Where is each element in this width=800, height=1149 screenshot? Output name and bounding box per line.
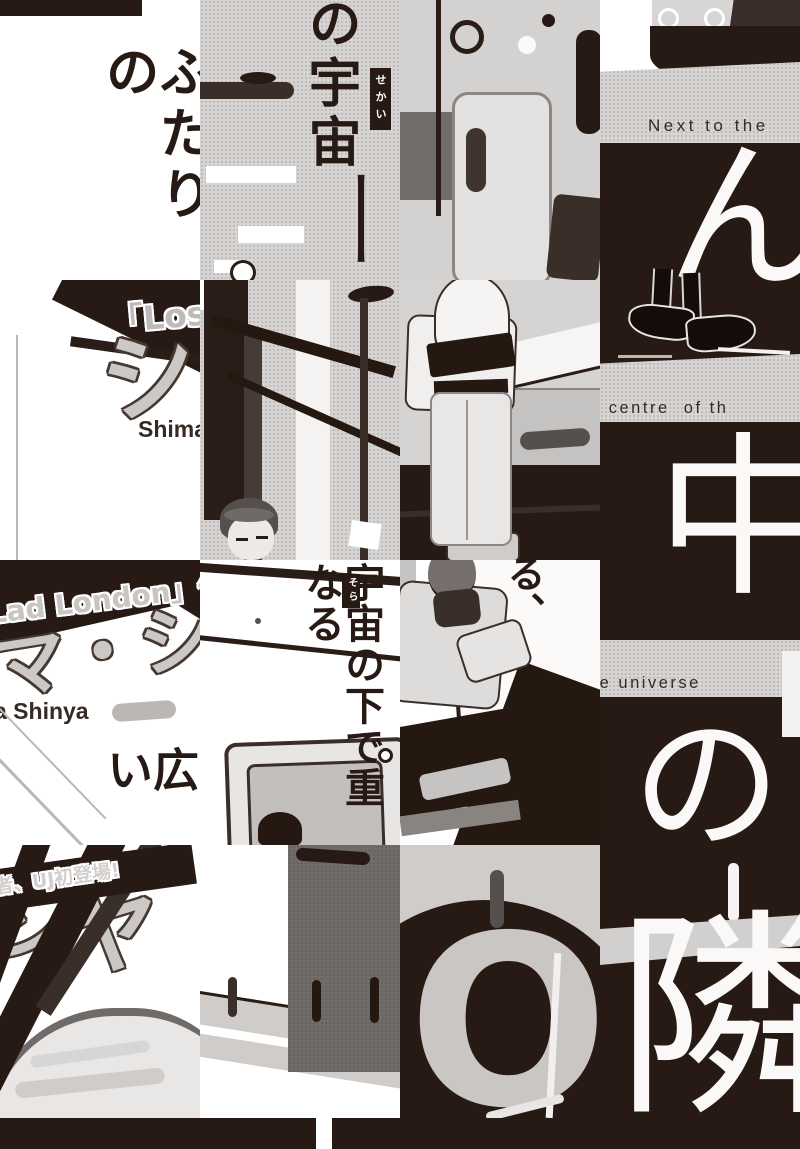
tile-machinery <box>400 0 600 280</box>
antenna-line <box>436 0 441 216</box>
ring-detail <box>450 20 484 54</box>
right-black-column: ん e centre of th 中 he universe の 隣 <box>600 143 800 1149</box>
tile-copy-center: 宇宙の下で重なる そら <box>200 560 400 845</box>
thin-pole-line <box>16 335 18 560</box>
tile-truck <box>200 845 400 1149</box>
curb-line <box>0 733 87 845</box>
vertical-copy-hiroi: 広い <box>104 746 196 845</box>
dark-dot <box>542 14 555 27</box>
vertical-copy-sora: 宇宙の下で重なる <box>301 562 381 845</box>
character-fringe <box>224 508 274 522</box>
black-bar <box>0 0 142 16</box>
white-patch <box>348 520 381 550</box>
seat-back <box>546 194 600 280</box>
caption-next-to-the: Next to the <box>648 116 769 136</box>
character-eye <box>236 538 248 541</box>
tile-seated-figure: る、 <box>400 560 600 845</box>
seat-slot <box>466 128 486 192</box>
zero-mark <box>230 260 256 280</box>
seated-scarf <box>432 588 482 629</box>
panel-handle <box>370 977 379 1023</box>
silhouette-head <box>258 812 302 845</box>
truck-panel <box>288 845 400 1072</box>
character-eye <box>256 536 268 539</box>
band-white-notch <box>316 1118 332 1149</box>
tile-street <box>200 280 400 560</box>
vertical-title-futarino: ふたりの <box>100 44 200 280</box>
gray-pill <box>111 700 176 722</box>
giant-char-no: の <box>616 705 768 857</box>
long-dash: ー <box>330 166 382 273</box>
furigana-sekai: せかい <box>375 74 386 125</box>
furigana-box-sora: そら <box>342 574 360 608</box>
vertical-copy-ru: る、 <box>504 560 542 630</box>
manga-promo-page: ふたりの の宇宙 ー せかい Next to the <box>0 0 800 1149</box>
platform-stripe <box>206 166 296 183</box>
ground-streak <box>618 355 672 358</box>
speck <box>255 618 261 624</box>
tile-top-left: ふたりの <box>0 0 200 280</box>
caption-the-universe: he universe <box>600 674 701 693</box>
ground-streak <box>718 347 790 355</box>
dark-structure <box>204 280 248 520</box>
bottom-black-band <box>0 1118 800 1149</box>
author-fragment-shima: Shima <box>138 416 200 443</box>
giant-char-naka: 中 <box>640 425 800 600</box>
pants-crease <box>466 400 468 540</box>
streetlamp-head <box>347 284 394 305</box>
platform-stripe <box>238 226 304 243</box>
white-strip <box>782 651 800 737</box>
caption-centre-of-the: e centre of th <box>600 399 728 418</box>
tile-standing-figure <box>400 280 600 560</box>
vertical-title-nouchu: の宇宙 <box>304 0 357 173</box>
tile-next-to-the: Next to the <box>600 0 800 143</box>
bench-side <box>400 112 456 200</box>
shelf-shape <box>200 82 294 99</box>
tile-author-block: Lad London」作 マ・シ a Shinya 広い <box>0 560 200 845</box>
tile-top-center: の宇宙 ー せかい <box>200 0 400 280</box>
figure-pants <box>430 392 512 546</box>
giant-char-tonari: 隣 <box>600 901 800 1121</box>
banner-uj-debut: 者、UJ初登場! <box>0 861 121 897</box>
panel-handle <box>228 977 237 1017</box>
furigana-sora: そら <box>346 577 356 605</box>
tile-lost-sign: 「Lost シ Shima <box>0 280 200 560</box>
panel-handle <box>312 980 321 1022</box>
light-dot <box>518 36 536 54</box>
furigana-box-sekai: せかい <box>370 68 391 130</box>
tile-wheel: O <box>400 845 600 1149</box>
letter-o: O <box>408 905 600 1141</box>
tile-bottom-left: ン ヤ 者、UJ初登場! <box>0 845 200 1149</box>
dark-pillar <box>576 30 600 134</box>
shelf-hook <box>240 72 276 84</box>
